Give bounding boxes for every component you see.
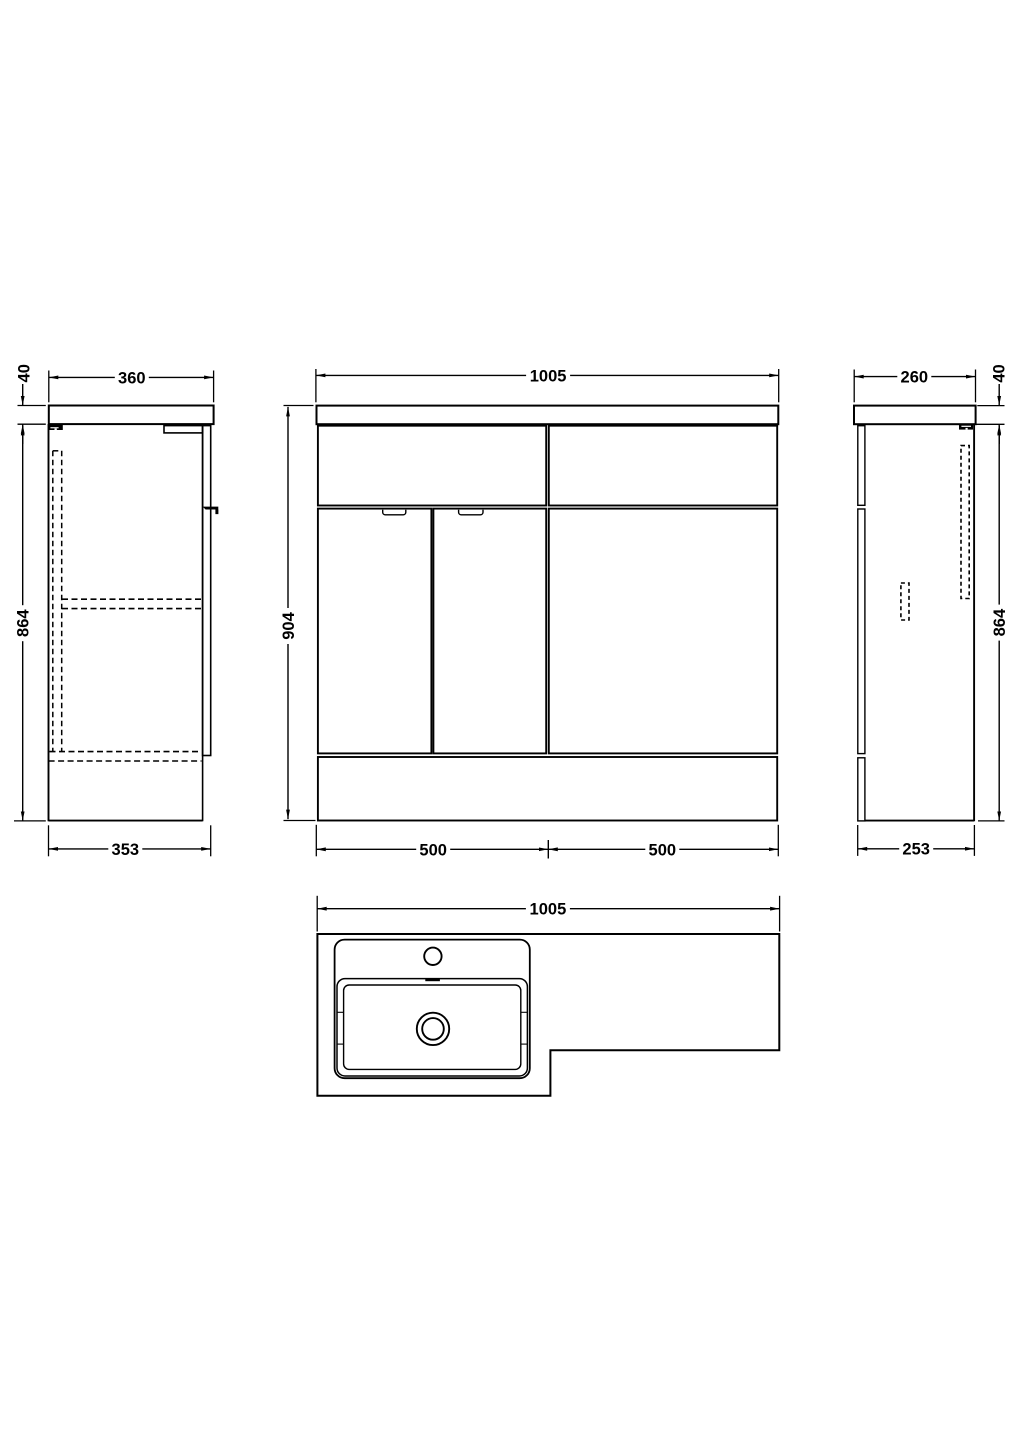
- svg-text:260: 260: [901, 369, 929, 387]
- svg-text:353: 353: [112, 841, 140, 859]
- svg-text:40: 40: [991, 364, 1009, 382]
- svg-text:500: 500: [649, 841, 677, 859]
- svg-text:253: 253: [902, 841, 930, 859]
- svg-text:864: 864: [991, 608, 1009, 636]
- svg-text:864: 864: [15, 609, 33, 637]
- svg-text:40: 40: [15, 364, 33, 382]
- svg-text:1005: 1005: [530, 367, 567, 385]
- svg-text:500: 500: [419, 841, 447, 859]
- svg-text:1005: 1005: [530, 901, 567, 919]
- svg-text:904: 904: [280, 611, 298, 639]
- svg-text:360: 360: [118, 369, 146, 387]
